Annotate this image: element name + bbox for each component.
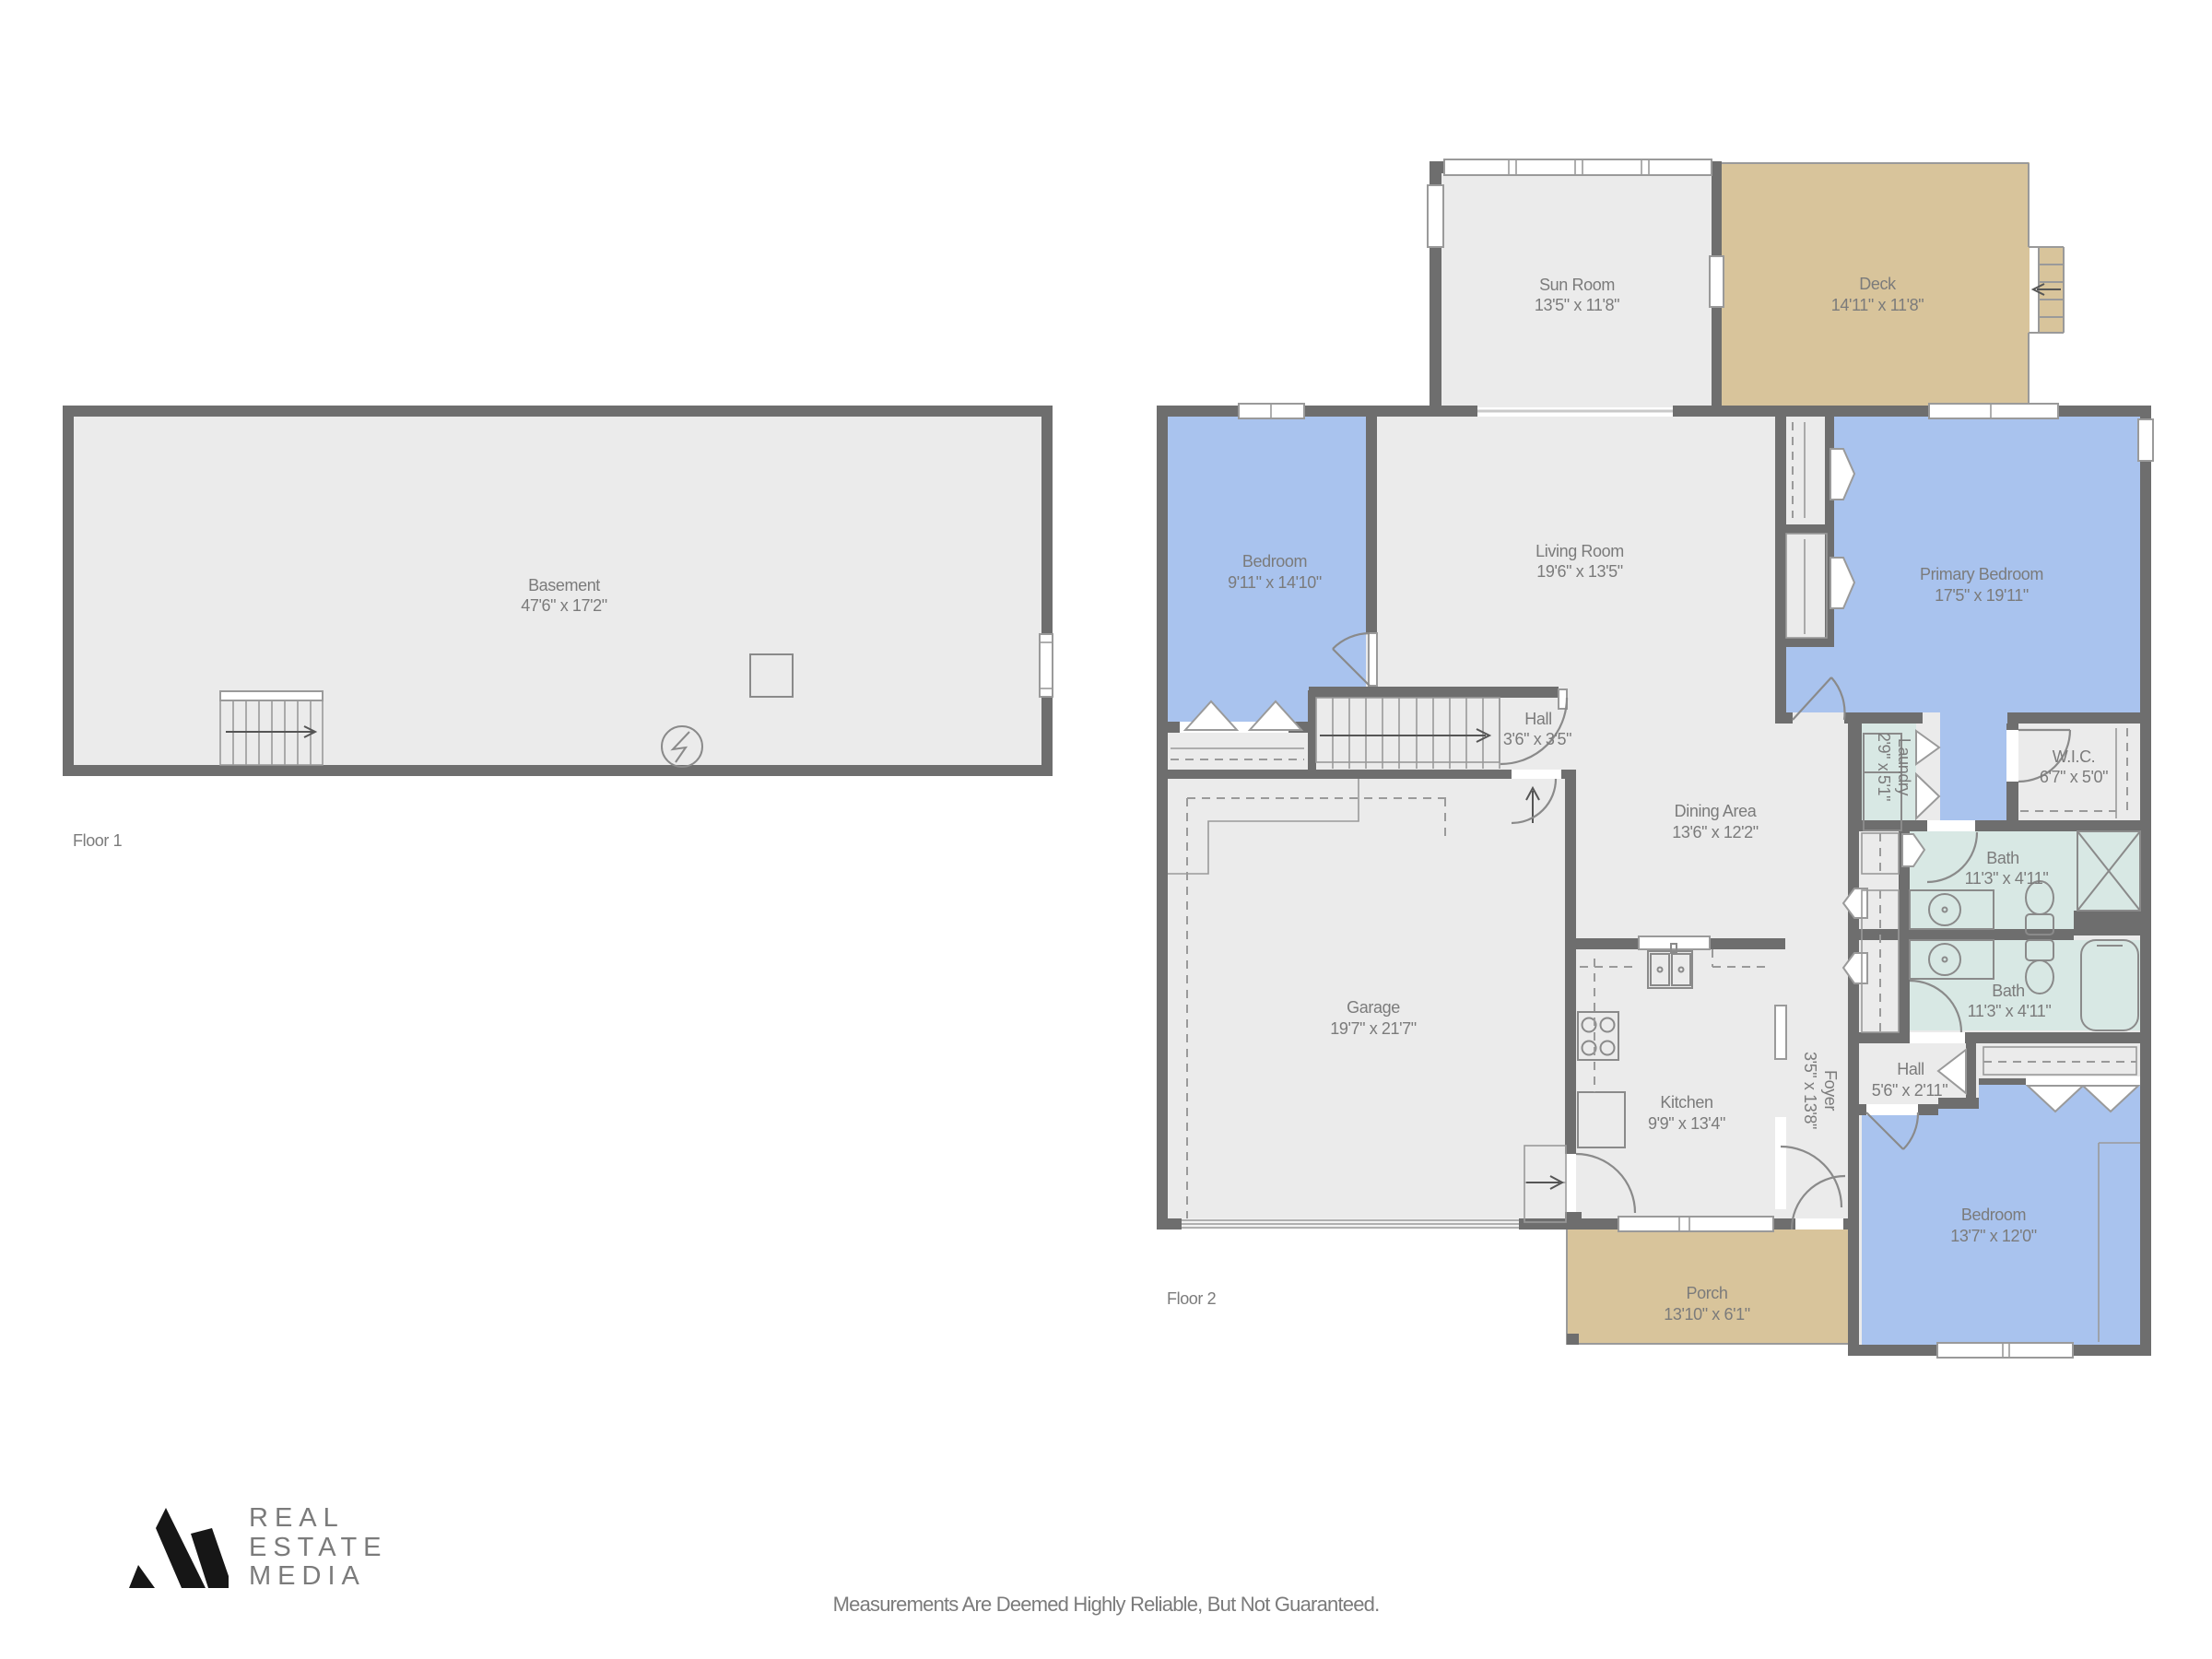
svg-text:13'7" x 12'0": 13'7" x 12'0" <box>1950 1227 2037 1245</box>
svg-text:Garage: Garage <box>1347 998 1400 1017</box>
svg-text:13'5" x 11'8": 13'5" x 11'8" <box>1535 296 1619 314</box>
svg-text:11'3" x 4'11": 11'3" x 4'11" <box>1965 869 2049 888</box>
svg-text:MEDIA: MEDIA <box>249 1561 366 1591</box>
svg-text:2'9" x 5'1": 2'9" x 5'1" <box>1875 733 1893 801</box>
svg-text:47'6" x 17'2": 47'6" x 17'2" <box>521 596 607 615</box>
svg-text:Sun Room: Sun Room <box>1539 276 1615 294</box>
svg-text:6'7" x 5'0": 6'7" x 5'0" <box>2040 768 2108 786</box>
svg-text:Hall: Hall <box>1897 1060 1924 1078</box>
svg-text:Hall: Hall <box>1524 710 1551 728</box>
svg-text:3'6" x 3'5": 3'6" x 3'5" <box>1503 730 1571 748</box>
svg-text:Living Room: Living Room <box>1535 542 1624 560</box>
svg-text:Bath: Bath <box>1986 849 2018 867</box>
svg-text:Foyer: Foyer <box>1821 1070 1840 1111</box>
svg-text:Primary Bedroom: Primary Bedroom <box>1920 565 2043 583</box>
svg-text:9'11" x 14'10": 9'11" x 14'10" <box>1228 573 1322 592</box>
svg-text:13'10" x 6'1": 13'10" x 6'1" <box>1664 1305 1750 1324</box>
svg-text:ESTATE: ESTATE <box>249 1533 388 1562</box>
svg-text:Floor 1: Floor 1 <box>73 831 123 850</box>
svg-text:Bedroom: Bedroom <box>1242 552 1307 571</box>
svg-text:11'3" x 4'11": 11'3" x 4'11" <box>1968 1002 2052 1020</box>
svg-text:Measurements Are Deemed Highly: Measurements Are Deemed Highly Reliable,… <box>833 1593 1380 1616</box>
svg-text:Floor 2: Floor 2 <box>1167 1289 1217 1308</box>
svg-text:Laundry: Laundry <box>1895 738 1913 796</box>
svg-text:Bath: Bath <box>1992 982 2024 1000</box>
svg-text:Basement: Basement <box>528 576 600 594</box>
svg-text:19'6" x 13'5": 19'6" x 13'5" <box>1536 562 1623 581</box>
svg-text:14'11" x 11'8": 14'11" x 11'8" <box>1831 296 1924 314</box>
svg-text:3'5" x 13'8": 3'5" x 13'8" <box>1801 1052 1819 1129</box>
svg-text:Bedroom: Bedroom <box>1961 1206 2026 1224</box>
svg-text:Porch: Porch <box>1686 1284 1727 1302</box>
svg-text:Dining Area: Dining Area <box>1675 802 1758 820</box>
svg-text:Deck: Deck <box>1859 275 1897 293</box>
svg-text:13'6" x 12'2": 13'6" x 12'2" <box>1672 823 1759 841</box>
svg-text:REAL: REAL <box>249 1503 345 1533</box>
svg-text:9'9" x 13'4": 9'9" x 13'4" <box>1648 1114 1725 1133</box>
svg-text:W.I.C.: W.I.C. <box>2053 747 2096 766</box>
svg-text:Kitchen: Kitchen <box>1660 1093 1712 1112</box>
svg-text:19'7" x 21'7": 19'7" x 21'7" <box>1330 1019 1417 1038</box>
svg-text:5'6" x 2'11": 5'6" x 2'11" <box>1872 1081 1948 1100</box>
svg-text:17'5" x 19'11": 17'5" x 19'11" <box>1935 586 2029 605</box>
